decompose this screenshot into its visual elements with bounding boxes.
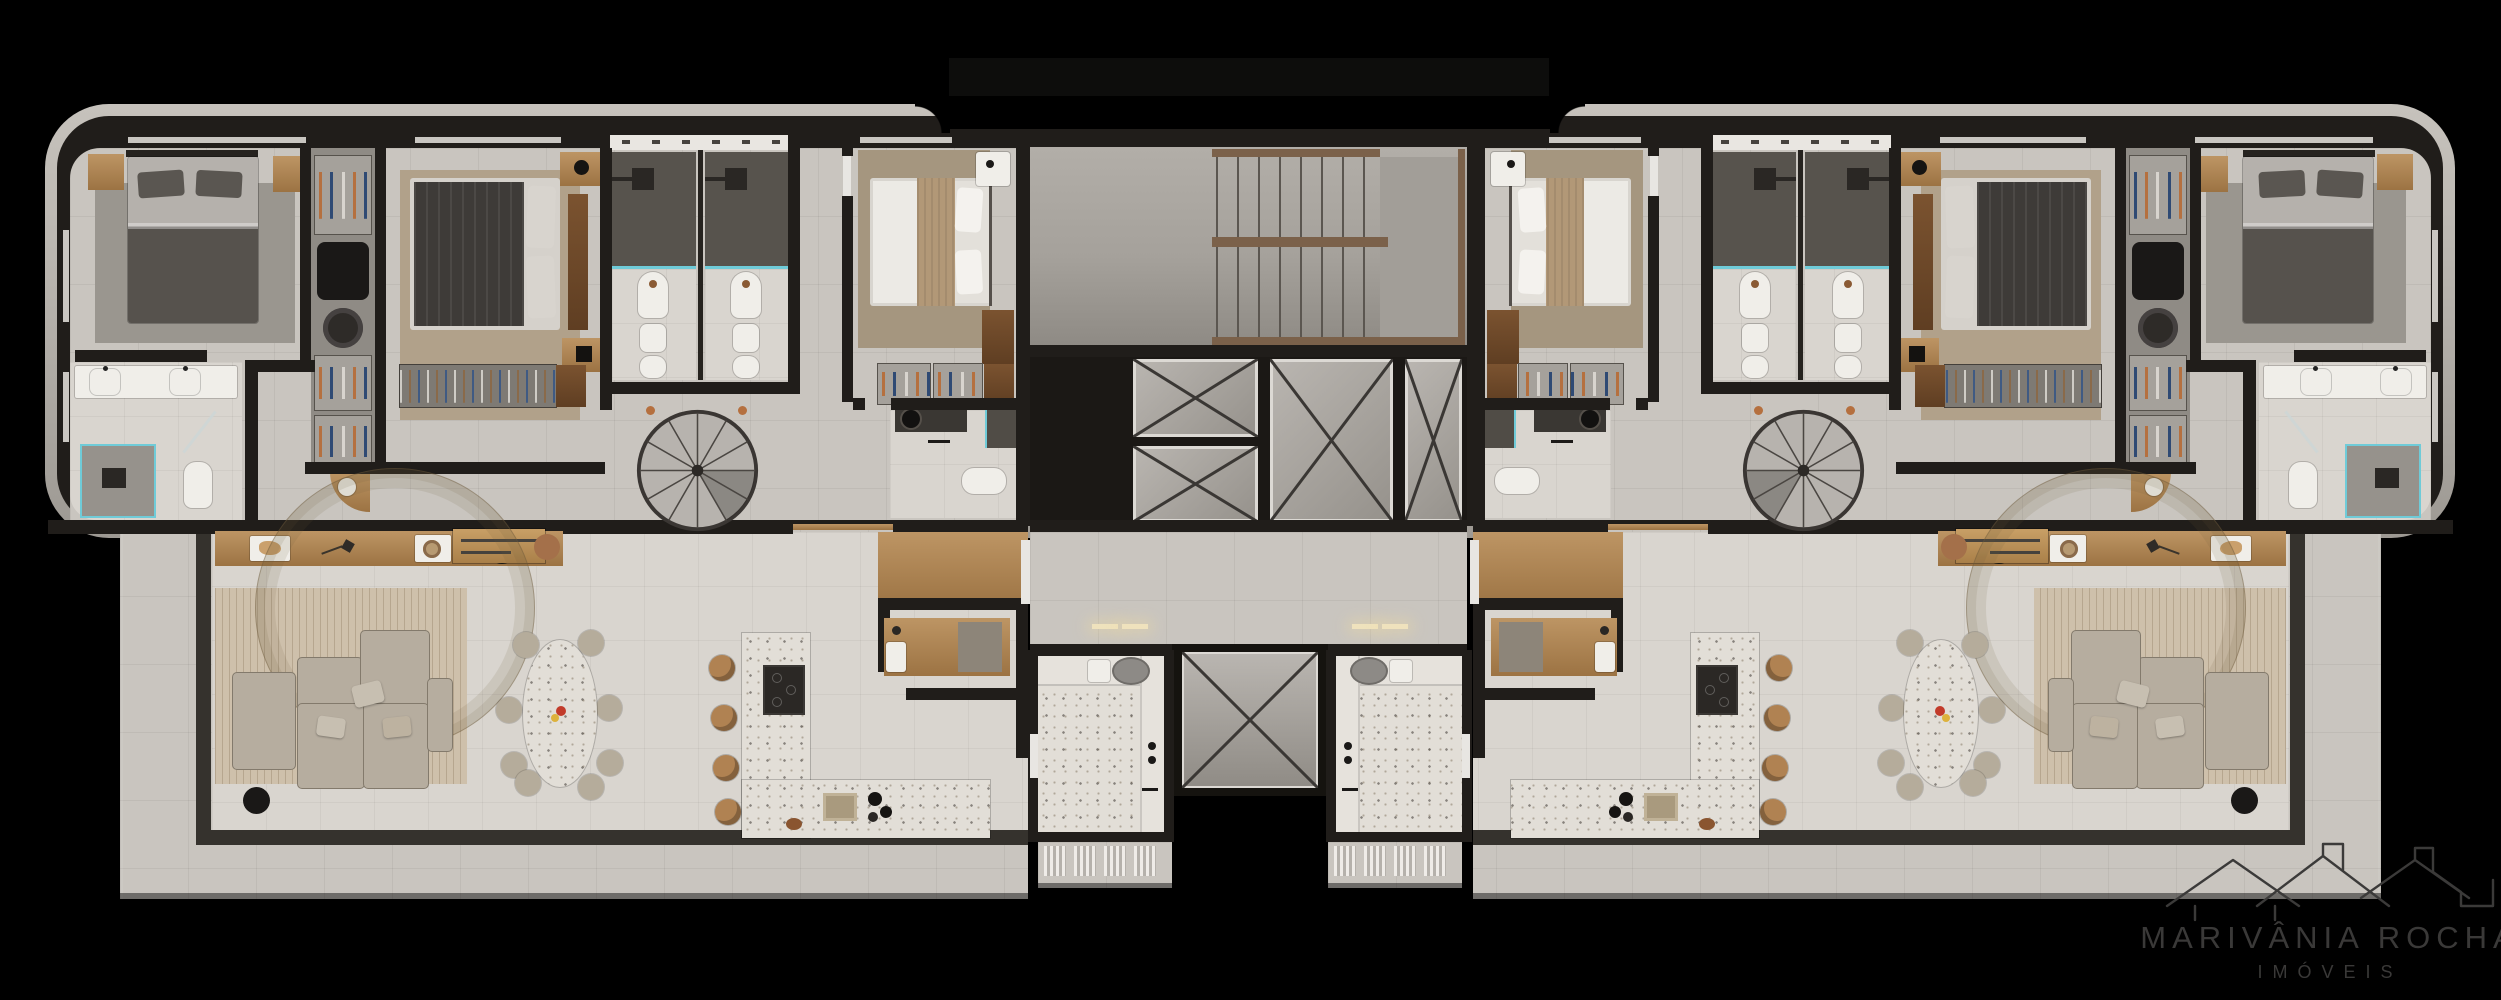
spiral-staircase (635, 408, 760, 533)
drying-unit (1424, 846, 1446, 876)
bed-2 (1941, 178, 2091, 330)
ceiling-light (1382, 624, 1408, 629)
window-strip (415, 137, 561, 143)
copper-drain (649, 280, 657, 288)
unit-entry-door (1470, 540, 1479, 604)
wall (1648, 148, 1659, 156)
burner (1719, 697, 1729, 707)
throw-tan (917, 178, 955, 306)
round-basin (1581, 410, 1599, 428)
closet-cabinet (1915, 365, 1945, 407)
entry-foyer-floor (878, 532, 1028, 608)
bed-2 (410, 178, 560, 330)
bidet (640, 324, 666, 352)
wall (608, 382, 794, 394)
toilet (640, 356, 666, 378)
bed-3 (870, 178, 992, 306)
office-desk (884, 618, 1010, 676)
wall (245, 360, 258, 532)
window-strip (860, 137, 952, 143)
dining-chair (1897, 774, 1923, 800)
toilet (2289, 462, 2317, 508)
wall (2243, 360, 2256, 532)
faucet (2393, 366, 2398, 371)
apartment-unit-right (1473, 110, 2453, 925)
dining-chair (1979, 697, 2005, 723)
sheet-fold (128, 223, 258, 229)
stall-divider-wall (1798, 150, 1803, 380)
wall (1707, 382, 1893, 394)
stall-divider-wall (698, 150, 703, 380)
copper-drain (742, 280, 750, 288)
door-leaf (1650, 156, 1658, 196)
throw-tan (1546, 178, 1584, 306)
laundry-left (1028, 650, 1174, 842)
cooktop (763, 665, 805, 715)
bar-stool (1760, 799, 1786, 825)
sofa-chaise (2048, 678, 2074, 752)
ceiling-light (1352, 624, 1378, 629)
garment-bag (317, 242, 369, 300)
sofa-cushion (2155, 715, 2186, 739)
laundry-door (1030, 734, 1038, 778)
dining-chair (1879, 695, 1905, 721)
unit-entry-door (1021, 540, 1030, 604)
shower-zone (612, 152, 696, 268)
oval-dining-table (1904, 640, 1978, 787)
coffee-cup (1623, 812, 1633, 822)
dining-chair (1878, 750, 1904, 776)
wall (305, 462, 605, 474)
dining-chair (513, 632, 539, 658)
threshold (1608, 524, 1708, 530)
wall (878, 598, 1028, 610)
shower-head (1847, 168, 1869, 190)
round-basin (902, 410, 920, 428)
white-nightstand (976, 152, 1010, 186)
hat-box (2138, 308, 2178, 348)
duvet-dark (1977, 182, 2087, 326)
sink-pedestal (1740, 272, 1770, 318)
pillow (1945, 256, 1975, 319)
oval-wash-basin (1114, 659, 1148, 683)
fruit-bowl-yellow (1942, 714, 1950, 722)
toilet (184, 462, 212, 508)
coffee-grinder (1609, 806, 1621, 818)
sheet-fold (2243, 223, 2373, 229)
desk-blotter (958, 622, 1002, 672)
elevator-shaft-x (1405, 359, 1462, 522)
wall (1636, 398, 1648, 410)
shoe-shelf (315, 356, 371, 410)
sink-pedestal (638, 272, 668, 318)
elevator-shaft-x (1133, 446, 1258, 522)
decor-dot (986, 160, 994, 168)
utility-sink (1088, 660, 1110, 682)
sofa-module (2205, 672, 2269, 770)
wall (1701, 133, 1713, 394)
sofa-cushion (2089, 716, 2119, 739)
sink (90, 369, 120, 395)
wall (245, 360, 315, 372)
wall (1473, 598, 1623, 610)
laundry-door (1462, 734, 1470, 778)
round-side-table (2231, 787, 2258, 814)
dining-chair (597, 750, 623, 776)
shower-zone (705, 152, 789, 268)
door-leaf (843, 156, 851, 196)
drying-unit (1394, 846, 1416, 876)
wall (891, 398, 1016, 410)
wall (906, 688, 1028, 700)
sheet-white (873, 181, 917, 303)
bidet (733, 324, 759, 352)
kitchen-sink (1644, 793, 1678, 821)
shower-head (725, 168, 747, 190)
pillow (137, 169, 185, 198)
drying-unit (1104, 846, 1126, 876)
toilet (1835, 356, 1861, 378)
wall (2186, 360, 2256, 372)
wall (1473, 598, 1485, 758)
sink-pedestal (1833, 272, 1863, 318)
shoe-shelf (2130, 356, 2186, 410)
window-strip (1549, 137, 1641, 143)
copper-vessel (534, 534, 560, 560)
master-bed-headboard (2243, 150, 2375, 157)
cutting-board (1699, 818, 1715, 830)
drain-dot (1148, 756, 1156, 764)
closet-cabinet (556, 365, 586, 407)
shower-arm (1774, 177, 1796, 181)
wall (1016, 598, 1028, 758)
copper-drain (1844, 280, 1852, 288)
faucet (183, 366, 188, 371)
window-strip (128, 137, 306, 143)
core-wall (1030, 520, 1467, 532)
drain-dot (1344, 742, 1352, 750)
headboard-edge (1509, 178, 1512, 306)
printer (886, 642, 906, 672)
elevator-shaft-x (1270, 359, 1393, 522)
master-bed (128, 157, 258, 323)
decor-dot (1507, 160, 1515, 168)
dining-chair (578, 774, 604, 800)
pillow (526, 186, 556, 249)
glazing-frame (196, 534, 211, 834)
shower-zone (985, 406, 1016, 448)
dining-chair (596, 695, 622, 721)
table-lamp (1912, 160, 1927, 175)
shower-arm (1867, 177, 1889, 181)
window-strip (63, 230, 69, 322)
copper-drain (1751, 280, 1759, 288)
window-strip (63, 372, 69, 442)
glazing-frame (2290, 534, 2305, 834)
towel-bar (1551, 440, 1573, 443)
dining-chair (496, 697, 522, 723)
laundry-right (1326, 650, 1472, 842)
ceiling-light (1122, 624, 1148, 629)
shower-head (632, 168, 654, 190)
shower-arm (705, 177, 727, 181)
coffee-cup (868, 812, 878, 822)
apartment-unit-left (48, 110, 1028, 925)
wall (375, 148, 386, 474)
drying-unit (1134, 846, 1156, 876)
burner (786, 685, 796, 695)
window-strip (1940, 137, 2086, 143)
bathroom-cabinet-row (1713, 135, 1891, 150)
wall-desk (1913, 194, 1933, 330)
wall-desk (568, 194, 588, 330)
threshold (793, 524, 893, 530)
master-bed-headboard (126, 150, 258, 157)
kitchen-island-horizontal (742, 780, 990, 838)
shoe-shelf (2130, 416, 2186, 468)
pillow (1945, 186, 1975, 249)
burner (1719, 673, 1729, 683)
nightstand (2377, 154, 2413, 190)
core-north-wall (950, 129, 1550, 149)
shower-arm (612, 177, 634, 181)
bar-stool (709, 655, 735, 681)
faucet (2313, 366, 2318, 371)
sofa-module (232, 672, 296, 770)
ceiling-light (1092, 624, 1118, 629)
floor-plan-canvas: MARIVÂNIA ROCHA IMÓVEIS (0, 0, 2501, 1000)
pillow (526, 256, 556, 319)
pillow (195, 170, 242, 198)
wall (842, 196, 853, 402)
dining-chair (1962, 632, 1988, 658)
roofline-notch (943, 96, 1557, 133)
watermark-tagline: IMÓVEIS (2140, 962, 2501, 983)
wall (1889, 148, 1901, 410)
wall (788, 133, 800, 394)
towel-bar (1142, 788, 1158, 791)
speaker (576, 346, 592, 362)
oval-wash-basin (1352, 659, 1386, 683)
shower-head (1754, 168, 1776, 190)
closet-rail (400, 365, 556, 407)
shoe-shelf (315, 416, 371, 468)
shoe-shelf (2130, 156, 2186, 234)
faucet (103, 366, 108, 371)
bidet (1835, 324, 1861, 352)
master-bed (2243, 157, 2373, 323)
hat-box (323, 308, 363, 348)
coffee-grinder (880, 806, 892, 818)
sofa-cushion (382, 716, 412, 739)
wall (300, 148, 311, 362)
speaker (1909, 346, 1925, 362)
bidet (1742, 324, 1768, 352)
kitchen-island-horizontal (1511, 780, 1759, 838)
watermark-text-block: MARIVÂNIA ROCHA IMÓVEIS (2140, 920, 2501, 983)
sofa-chaise (427, 678, 453, 752)
spiral-staircase (1741, 408, 1866, 533)
wood-dresser (1487, 310, 1519, 364)
pillow (954, 187, 983, 233)
copper-vessel (1941, 534, 1967, 560)
wall (1473, 688, 1595, 700)
duvet-dark (414, 182, 524, 326)
rooftops-icon (2165, 840, 2495, 926)
window-strip (2195, 137, 2373, 143)
coffee-machine (868, 792, 882, 806)
wall (1648, 196, 1659, 402)
coffee-machine (1619, 792, 1633, 806)
nightstand (88, 154, 124, 190)
sofa-module (2072, 703, 2138, 789)
wall (2190, 148, 2201, 362)
sofa-module (297, 703, 365, 789)
wall (853, 398, 865, 410)
dining-chair (1960, 770, 1986, 796)
drying-unit (1074, 846, 1096, 876)
bathroom-cabinet-row (610, 135, 788, 150)
wall (2115, 148, 2126, 474)
utility-sink (1390, 660, 1412, 682)
toilet (1495, 468, 1539, 494)
sofa-module (363, 703, 429, 789)
sink (170, 369, 200, 395)
elevator-shaft-x (1133, 359, 1258, 437)
shower-zone (1485, 406, 1516, 448)
wall (2294, 350, 2426, 362)
drain-dot (1344, 756, 1352, 764)
dining-chair (515, 770, 541, 796)
pillow (2316, 169, 2364, 198)
round-side-table (243, 787, 270, 814)
drying-unit (1364, 846, 1386, 876)
headboard-edge (989, 178, 992, 306)
dining-chair (578, 630, 604, 656)
table-lamp (574, 160, 589, 175)
pillow (1518, 249, 1546, 294)
burner (772, 697, 782, 707)
watermark-brand: MARIVÂNIA ROCHA (2140, 920, 2501, 956)
desk-accessory (892, 626, 901, 635)
wood-dresser (982, 310, 1014, 364)
shoe-shelf (315, 156, 371, 234)
window-strip (2432, 372, 2438, 442)
drying-unit (1044, 846, 1066, 876)
desk-accessory (1600, 626, 1609, 635)
toilet (1742, 356, 1768, 378)
sink-pedestal (731, 272, 761, 318)
sink (2381, 369, 2411, 395)
towel-bar (928, 440, 950, 443)
toilet (962, 468, 1006, 494)
wall (75, 350, 207, 362)
office-desk (1491, 618, 1617, 676)
wall (1485, 398, 1610, 410)
drain-dot (1148, 742, 1156, 750)
wall (842, 148, 853, 156)
desk-blotter (1499, 622, 1543, 672)
bar-stool (715, 799, 741, 825)
burner (772, 673, 782, 683)
oval-dining-table (523, 640, 597, 787)
pillow (1517, 187, 1546, 233)
wall (1896, 462, 2196, 474)
shower-head (2375, 468, 2399, 488)
sheet-white (1584, 181, 1628, 303)
entry-foyer-floor (1473, 532, 1623, 608)
window-strip (2432, 230, 2438, 322)
drying-unit (1334, 846, 1356, 876)
pillow (955, 249, 983, 294)
pillow (2258, 170, 2305, 198)
bar-stool (1762, 755, 1788, 781)
wall (600, 148, 612, 410)
bar-stool (713, 755, 739, 781)
fruit-bowl-yellow (551, 714, 559, 722)
kitchen-sink (823, 793, 857, 821)
cutting-board (786, 818, 802, 830)
cooktop (1696, 665, 1738, 715)
switchback-staircase (1212, 149, 1465, 345)
white-nightstand (1491, 152, 1525, 186)
toilet (733, 356, 759, 378)
bar-stool (1766, 655, 1792, 681)
sink (2301, 369, 2331, 395)
burner (1705, 685, 1715, 695)
towel-bar (1342, 788, 1358, 791)
bar-stool (711, 705, 737, 731)
printer (1595, 642, 1615, 672)
service-shaft-x (1182, 652, 1318, 788)
sofa-cushion (316, 715, 347, 739)
bed-3 (1509, 178, 1631, 306)
bar-stool (1764, 705, 1790, 731)
shower-head (102, 468, 126, 488)
garment-bag (2132, 242, 2184, 300)
closet-rail (1945, 365, 2101, 407)
